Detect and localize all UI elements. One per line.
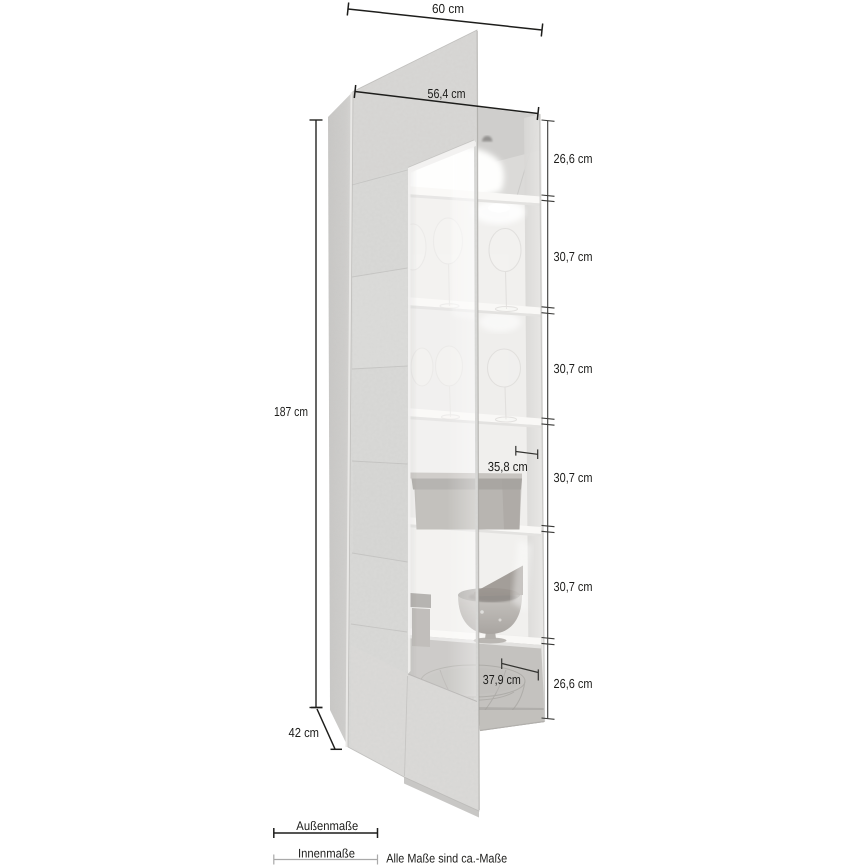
svg-text:37,9 cm: 37,9 cm xyxy=(483,672,521,687)
svg-text:Innenmaße: Innenmaße xyxy=(298,847,355,861)
svg-text:30,7 cm: 30,7 cm xyxy=(554,470,593,485)
svg-text:26,6 cm: 26,6 cm xyxy=(554,151,593,166)
svg-text:Außenmaße: Außenmaße xyxy=(296,819,358,833)
svg-text:42 cm: 42 cm xyxy=(289,725,320,740)
svg-text:Alle Maße sind ca.-Maße: Alle Maße sind ca.-Maße xyxy=(386,852,507,866)
svg-text:187 cm: 187 cm xyxy=(274,404,308,419)
svg-text:30,7 cm: 30,7 cm xyxy=(554,579,593,594)
svg-text:60 cm: 60 cm xyxy=(432,1,464,16)
svg-text:26,6 cm: 26,6 cm xyxy=(554,676,593,691)
svg-text:30,7 cm: 30,7 cm xyxy=(554,249,593,264)
svg-text:56,4 cm: 56,4 cm xyxy=(428,86,466,101)
svg-text:35,8 cm: 35,8 cm xyxy=(488,459,528,474)
svg-text:30,7 cm: 30,7 cm xyxy=(554,361,593,376)
